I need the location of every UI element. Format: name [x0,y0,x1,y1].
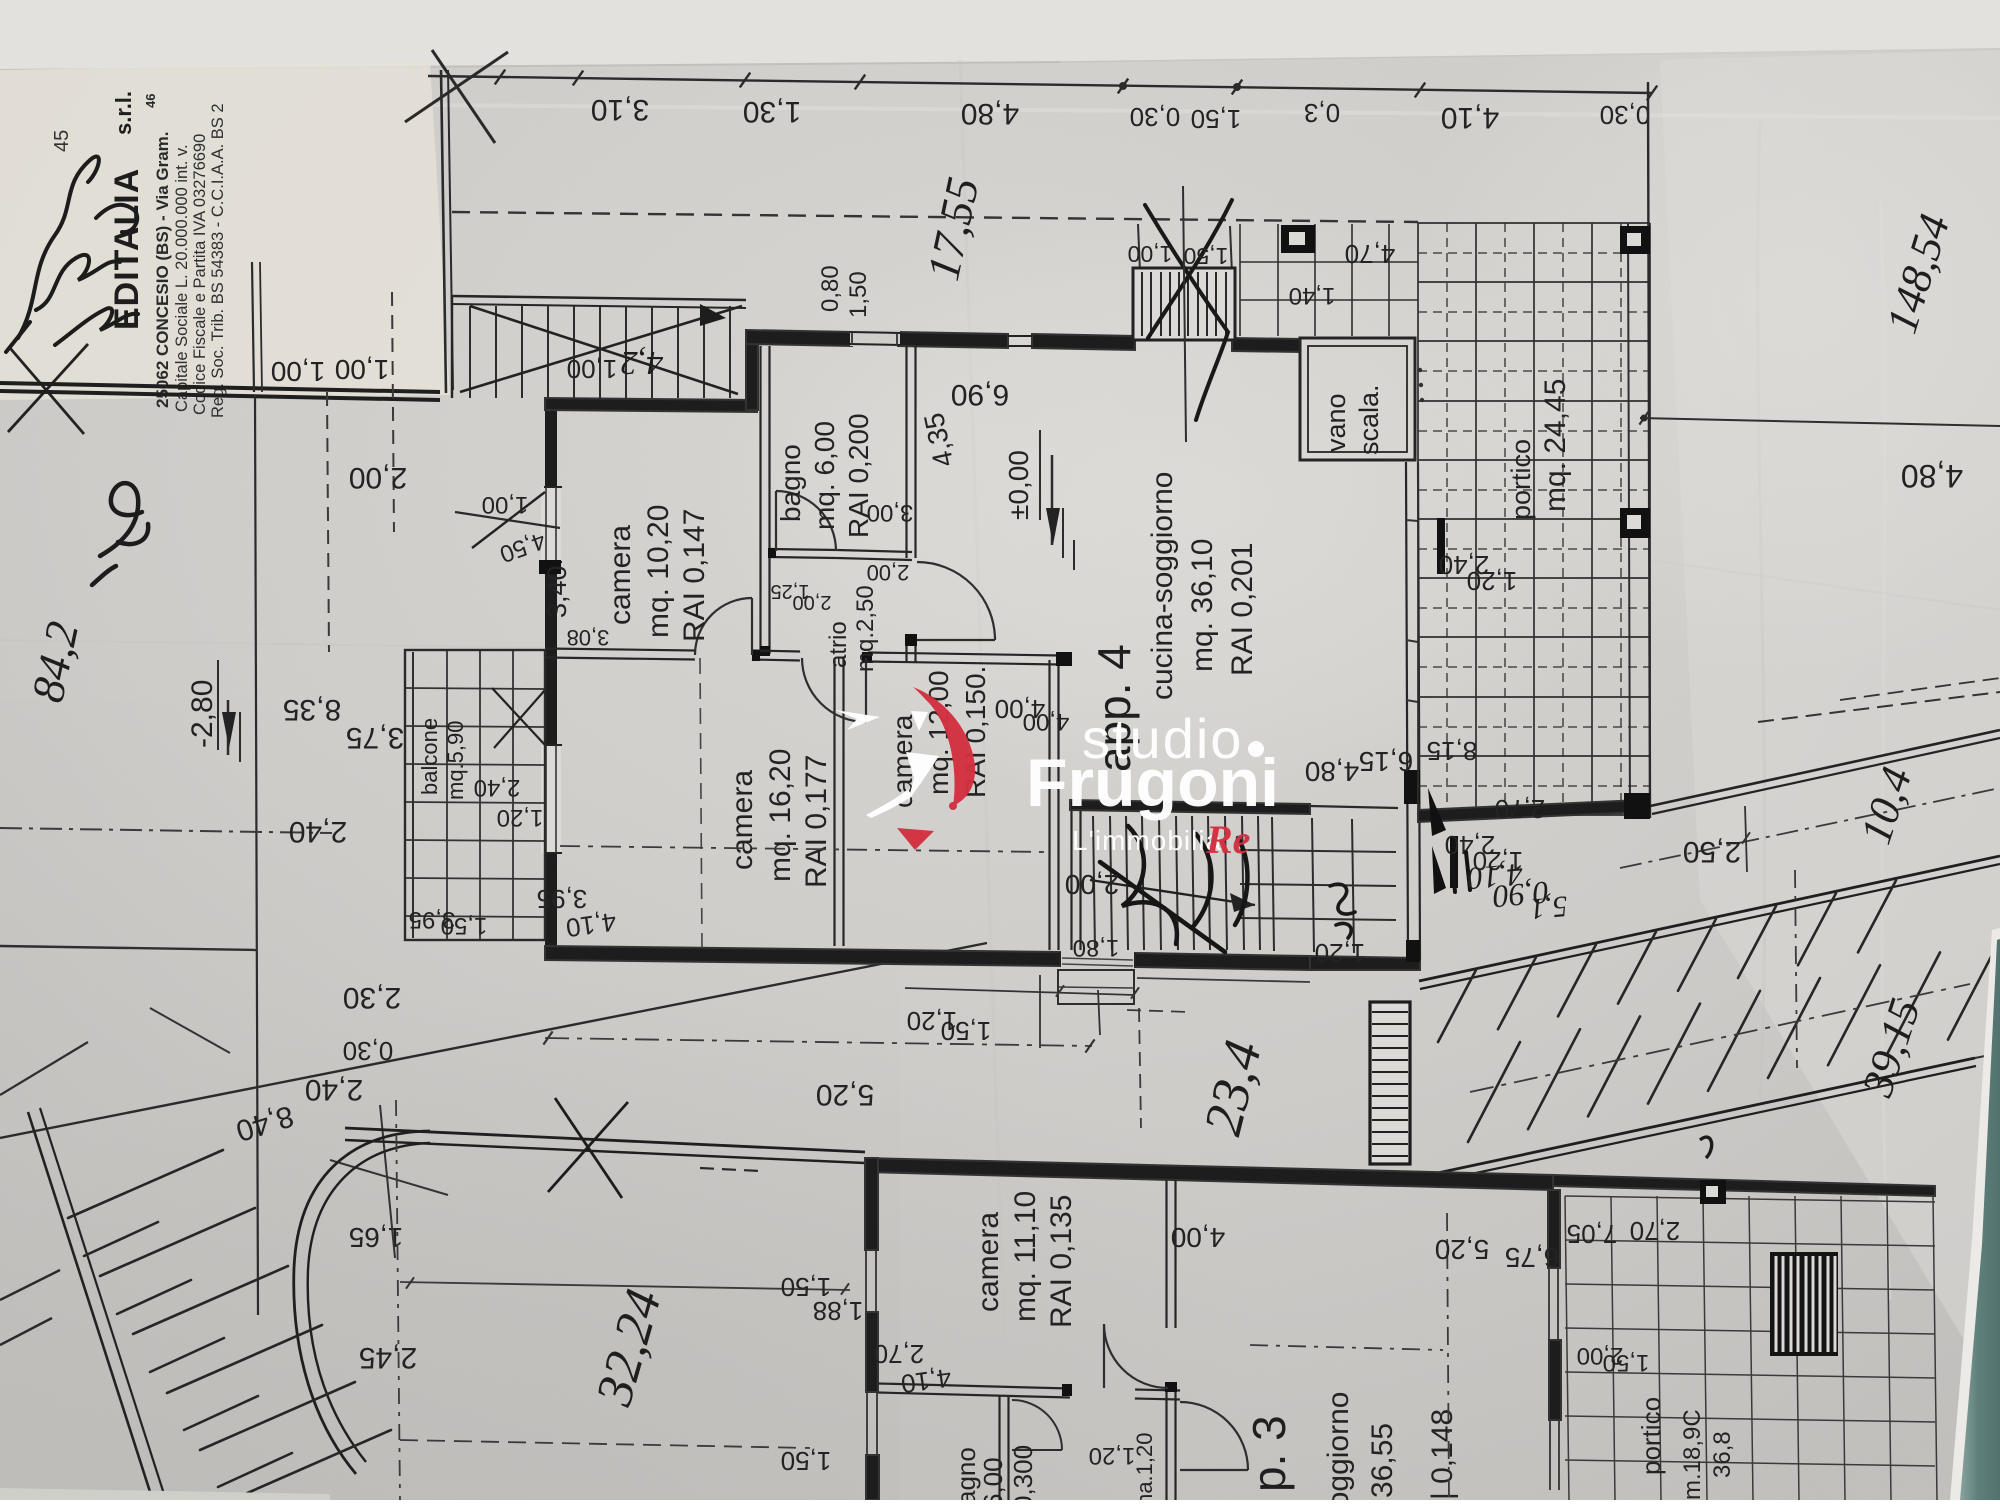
svg-text:2,00: 2,00 [793,591,832,613]
svg-text:2,40: 2,40 [474,774,521,801]
svg-text:1,30: 1,30 [743,95,801,128]
svg-text:1,65: 1,65 [349,1222,404,1253]
svg-text:2,00: 2,00 [349,461,407,494]
svg-text:1,00: 1,00 [335,354,390,385]
svg-text:vano: vano [1321,393,1351,452]
svg-text:2,40: 2,40 [289,815,347,848]
svg-text:p. 3: p. 3 [1243,1415,1295,1492]
svg-text:RAI 0,135: RAI 0,135 [1045,1195,1078,1328]
svg-text:0,30: 0,30 [1600,100,1651,130]
svg-text:1,50: 1,50 [1603,1349,1650,1376]
svg-text:5,20: 5,20 [1435,1234,1490,1265]
svg-text:5,20: 5,20 [816,1078,874,1111]
svg-text:1,20: 1,20 [1089,1442,1136,1469]
svg-text:ma.1,20: ma.1,20 [1132,1433,1157,1501]
svg-text:1,50: 1,50 [941,1016,992,1046]
svg-text:0,30: 0,30 [343,1036,394,1066]
svg-text:4,70: 4,70 [1345,239,1396,269]
svg-text:2,45: 2,45 [359,1341,417,1374]
svg-text:4,80: 4,80 [961,97,1019,130]
svg-text:4,2: 4,2 [621,344,664,381]
svg-text:8,35: 8,35 [283,693,341,726]
svg-text:1,00: 1,00 [271,356,326,387]
svg-text:3,10: 3,10 [591,93,649,126]
svg-text:bagno: bagno [775,444,806,522]
svg-text:2,00: 2,00 [1065,869,1120,900]
svg-text:RAI 0,201: RAI 0,201 [1226,543,1259,676]
svg-text:0,300: 0,300 [1008,1445,1038,1500]
svg-text:36,55: 36,55 [1366,1423,1399,1498]
svg-text:camera: camera [972,1212,1005,1312]
svg-text:1,00: 1,00 [1128,241,1173,267]
svg-text:atrio: atrio [825,621,852,668]
svg-text:36,8: 36,8 [1709,1431,1736,1478]
svg-text:mq.2,50: mq.2,50 [852,585,879,672]
svg-text:-2,80: -2,80 [186,680,219,748]
svg-text:0,30: 0,30 [1130,102,1181,132]
svg-text:Re: Re [1205,817,1250,862]
svg-text:cucina-soggiorno: cucina-soggiorno [1322,1392,1355,1500]
svg-text:mq. 11,10: mq. 11,10 [1009,1191,1042,1322]
svg-text:mq. 6,00: mq. 6,00 [809,421,840,530]
svg-text:Reg. Soc. Trib. BS 54383 - C.C: Reg. Soc. Trib. BS 54383 - C.C.I.A.A. BS… [209,103,227,418]
svg-text:2,70: 2,70 [874,1339,925,1369]
svg-text:L'immobilia: L'immobilia [1072,825,1222,856]
svg-text:scala.: scala. [1354,384,1384,455]
svg-text:2,70: 2,70 [1495,794,1546,824]
svg-text:1,50: 1,50 [1184,243,1229,269]
svg-text:portico: portico [1636,1397,1666,1475]
svg-text:1,20: 1,20 [497,804,544,831]
svg-text:2,00: 2,00 [867,560,910,585]
svg-text:4,10: 4,10 [1441,101,1499,134]
svg-text:mq. 36,10: mq. 36,10 [1186,539,1219,672]
svg-text:camera: camera [726,770,759,870]
svg-text:2,50: 2,50 [1683,835,1741,868]
svg-text:mq. 10,20: mq. 10,20 [642,505,675,638]
svg-text:RAI 0,177: RAI 0,177 [800,755,833,888]
svg-text:mq. 24,45: mq. 24,45 [1539,379,1572,512]
svg-text:3,75: 3,75 [346,721,404,754]
svg-text:1,50: 1,50 [1191,104,1242,134]
svg-text:2,70: 2,70 [1630,1216,1681,1246]
svg-text:46: 46 [143,94,158,108]
svg-text:1,00: 1,00 [482,491,529,518]
svg-text:1,50: 1,50 [441,912,488,939]
svg-text:5,1: 5,1 [1529,889,1569,925]
svg-text:1,20: 1,20 [1467,566,1518,596]
svg-text:4,00: 4,00 [1171,1222,1226,1253]
svg-text:mq.5,90: mq.5,90 [443,721,468,801]
svg-text:3,95: 3,95 [537,884,588,914]
svg-text:2,30: 2,30 [343,981,401,1014]
svg-text:0,3: 0,3 [1304,98,1340,128]
svg-text:mq. 16,20: mq. 16,20 [764,749,797,882]
svg-text:1,88: 1,88 [813,1296,864,1326]
svg-text:RAI 0,147: RAI 0,147 [678,509,711,642]
svg-text:portico: portico [1506,439,1536,520]
svg-text:1,20: 1,20 [1315,938,1366,968]
svg-text:3,08: 3,08 [567,625,610,650]
svg-text:agno: agno [951,1447,981,1500]
svg-text:Frugoni: Frugoni [1026,745,1279,821]
svg-text:4,00: 4,00 [1023,708,1070,735]
svg-text:6,75: 6,75 [1505,1242,1560,1273]
svg-text:25062 CONCESIO (BS) - Via Gram: 25062 CONCESIO (BS) - Via Gram. [153,131,172,408]
svg-text:balcone: balcone [417,718,442,795]
svg-text:2,40: 2,40 [305,1073,363,1106]
svg-text:3,40: 3,40 [542,565,572,618]
svg-text:EDITALIA: EDITALIA [108,168,146,330]
svg-text:0,80: 0,80 [817,265,844,312]
svg-text:Capitale Sociale L. 20.000.000: Capitale Sociale L. 20.000.000 int. v. [173,144,191,412]
svg-text:8,15: 8,15 [1427,736,1478,766]
svg-text:| 0,148: | 0,148 [1426,1409,1459,1500]
svg-text:6,15: 6,15 [1359,746,1414,777]
svg-text:4,80: 4,80 [1305,756,1360,787]
svg-text:1,40: 1,40 [1289,282,1336,309]
svg-text:±0,00: ±0,00 [1003,450,1034,520]
svg-text:1,50: 1,50 [845,271,872,318]
svg-text:cucina-soggiorno: cucina-soggiorno [1146,472,1179,700]
svg-text:s.r.l.: s.r.l. [111,91,136,135]
svg-text:m.18,9C: m.18,9C [1679,1409,1706,1500]
svg-text:4,80: 4,80 [1901,458,1963,494]
svg-text:1,50: 1,50 [781,1446,832,1476]
svg-text:camera: camera [604,525,637,625]
svg-text:Codice Fiscale e Partita IVA 0: Codice Fiscale e Partita IVA 03276690 [191,134,209,415]
svg-text:1,80: 1,80 [1073,934,1120,961]
svg-text:1,00: 1,00 [567,354,618,384]
svg-text:6,00: 6,00 [978,1457,1008,1500]
svg-text:45: 45 [51,130,73,152]
svg-text:6,90: 6,90 [951,378,1009,411]
svg-text:3,00: 3,00 [867,499,914,526]
svg-text:7,05: 7,05 [1567,1219,1618,1249]
